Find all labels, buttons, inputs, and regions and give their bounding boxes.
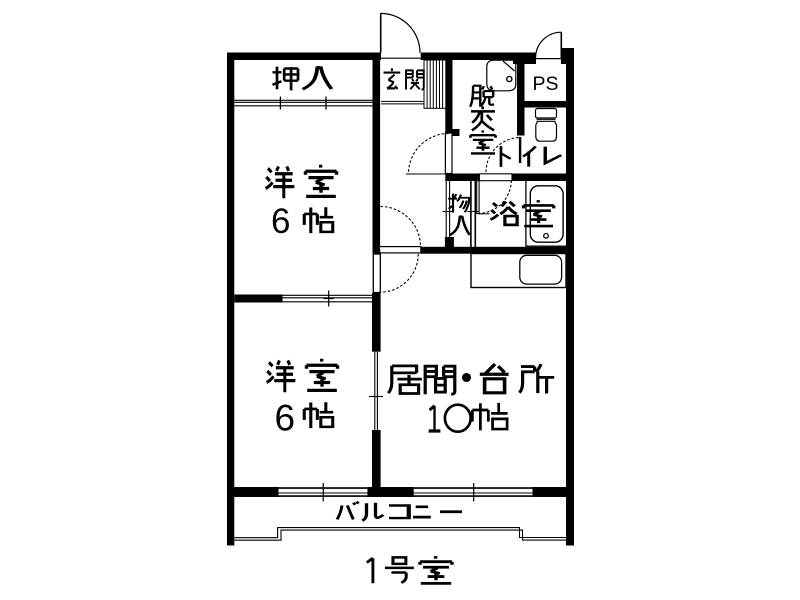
- svg-text:6: 6: [275, 398, 296, 439]
- svg-text:PS: PS: [533, 73, 559, 95]
- svg-text:6: 6: [271, 202, 290, 241]
